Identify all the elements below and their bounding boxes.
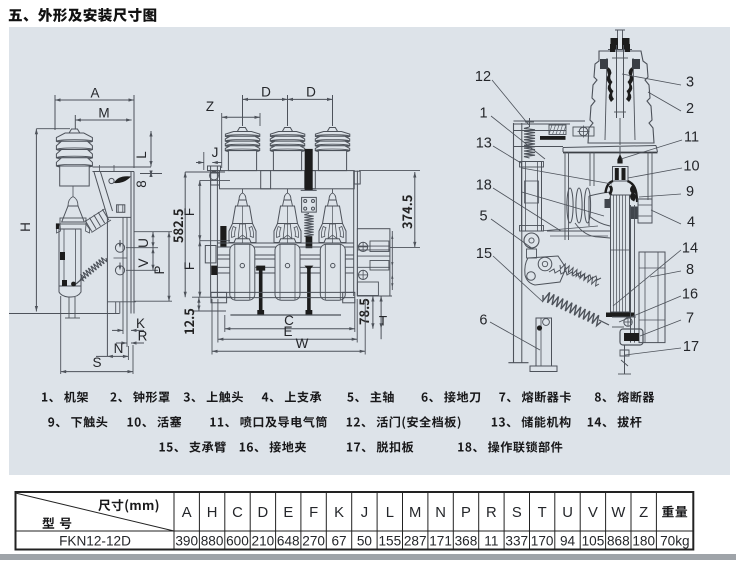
svg-text:337: 337 <box>505 534 528 549</box>
svg-text:T: T <box>538 505 547 521</box>
svg-text:J: J <box>361 505 368 521</box>
svg-text:6: 6 <box>479 312 487 328</box>
svg-text:H: H <box>18 222 33 232</box>
svg-text:F: F <box>309 505 318 521</box>
svg-text:H: H <box>207 505 218 521</box>
svg-text:94: 94 <box>560 534 576 549</box>
svg-text:648: 648 <box>277 534 300 549</box>
svg-text:A: A <box>90 86 99 101</box>
svg-text:U: U <box>562 505 573 521</box>
svg-text:270: 270 <box>302 534 325 549</box>
svg-text:N: N <box>114 341 124 356</box>
svg-text:170: 170 <box>531 534 554 549</box>
svg-text:N: N <box>435 505 446 521</box>
svg-text:1: 1 <box>479 105 487 121</box>
svg-text:T: T <box>379 314 387 329</box>
svg-text:10: 10 <box>683 158 699 174</box>
svg-text:E: E <box>283 324 292 339</box>
svg-text:W: W <box>296 336 309 351</box>
svg-text:F: F <box>182 262 197 270</box>
svg-text:C: C <box>232 505 243 521</box>
svg-text:M: M <box>409 505 421 521</box>
svg-text:15: 15 <box>476 246 492 262</box>
svg-text:J: J <box>212 145 219 160</box>
svg-text:4: 4 <box>687 214 695 230</box>
svg-text:R: R <box>486 505 497 521</box>
svg-text:D: D <box>261 85 271 100</box>
svg-text:12: 12 <box>475 69 491 85</box>
svg-text:180: 180 <box>632 534 655 549</box>
svg-text:9: 9 <box>686 184 694 200</box>
svg-text:D: D <box>258 505 269 521</box>
svg-text:U: U <box>136 238 151 248</box>
svg-text:880: 880 <box>201 534 224 549</box>
svg-text:L: L <box>386 505 394 521</box>
svg-text:18: 18 <box>476 178 492 194</box>
svg-text:67: 67 <box>331 534 346 549</box>
svg-text:V: V <box>588 505 598 521</box>
svg-text:FKN12-12D: FKN12-12D <box>59 534 131 549</box>
svg-text:368: 368 <box>455 534 478 549</box>
svg-text:155: 155 <box>378 534 401 549</box>
svg-text:7: 7 <box>686 311 694 327</box>
svg-text:17: 17 <box>683 339 699 355</box>
svg-text:M: M <box>98 106 109 121</box>
svg-text:8: 8 <box>134 180 149 188</box>
svg-text:50: 50 <box>357 534 373 549</box>
svg-text:L: L <box>134 151 149 159</box>
svg-text:390: 390 <box>175 534 198 549</box>
svg-text:P: P <box>461 505 471 521</box>
svg-text:868: 868 <box>607 534 630 549</box>
svg-text:F: F <box>182 208 197 216</box>
svg-text:11: 11 <box>684 130 699 146</box>
svg-text:11: 11 <box>484 534 498 549</box>
svg-text:3: 3 <box>686 75 694 91</box>
svg-text:R: R <box>138 329 148 344</box>
svg-text:A: A <box>182 505 192 521</box>
svg-text:14: 14 <box>682 240 698 256</box>
svg-text:D: D <box>306 85 316 100</box>
svg-text:S: S <box>512 505 522 521</box>
svg-text:171: 171 <box>429 534 452 549</box>
svg-text:8: 8 <box>686 262 694 278</box>
svg-text:Z: Z <box>639 505 648 521</box>
svg-text:5: 5 <box>479 209 487 225</box>
svg-text:105: 105 <box>582 534 605 549</box>
svg-text:2: 2 <box>686 101 694 117</box>
svg-text:Z: Z <box>206 99 214 114</box>
svg-text:70kg: 70kg <box>660 534 689 549</box>
svg-text:210: 210 <box>252 534 275 549</box>
svg-text:600: 600 <box>226 534 249 549</box>
svg-text:13: 13 <box>476 136 492 152</box>
svg-text:S: S <box>92 355 101 370</box>
svg-text:K: K <box>334 505 344 521</box>
svg-text:V: V <box>136 258 151 267</box>
svg-text:P: P <box>152 265 167 274</box>
svg-text:287: 287 <box>404 534 427 549</box>
svg-text:E: E <box>283 505 293 521</box>
svg-text:W: W <box>611 505 625 521</box>
svg-text:16: 16 <box>682 287 698 303</box>
